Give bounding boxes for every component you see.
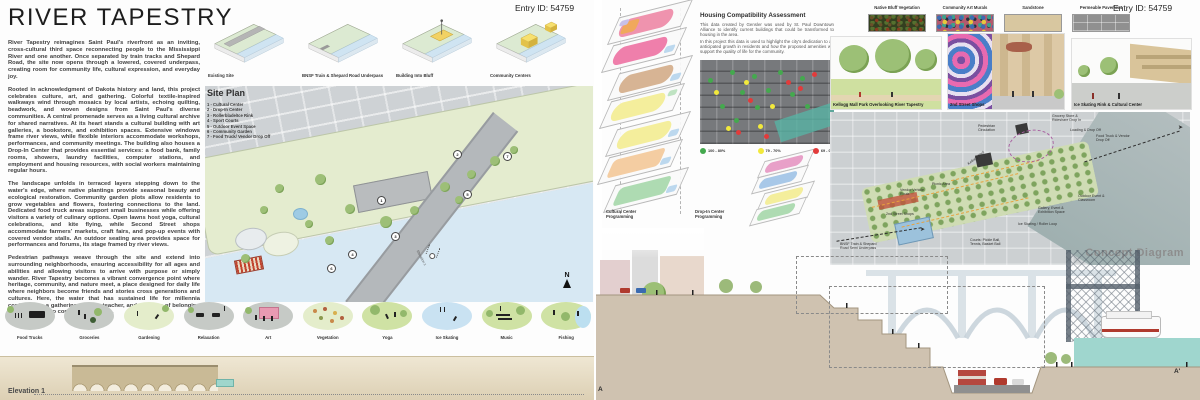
amenity-fishing: Fishing (536, 302, 596, 340)
elevation-baseline (34, 394, 584, 395)
assessment-dot (786, 80, 791, 85)
siteplan-marker: 4 (348, 250, 357, 259)
annotation: Loading & Drop Off (1070, 128, 1110, 132)
paragraph: River Tapestry reimagines Saint Paul's r… (8, 40, 200, 81)
process-diagram-label: BNSF Train & Shepard Road Underpass (302, 73, 396, 78)
water-shape (575, 306, 591, 328)
legend-green: 100 - 80% (700, 148, 725, 154)
siteplan-marker: 7 (503, 152, 512, 161)
column (1044, 34, 1052, 96)
amenity-relaxation: Relaxation (179, 302, 239, 340)
cultural-programming-label: Cultural Center Programming (606, 210, 662, 220)
community-centers-diagram-icon (490, 16, 574, 66)
section-marker-a: A (598, 386, 603, 393)
assessment-dot (714, 90, 719, 95)
process-diagram-bluff: Building Into Bluff (396, 16, 490, 78)
sidewalk (992, 96, 1064, 109)
assessment-dot (758, 124, 763, 129)
tree-icon (345, 204, 355, 214)
concept-diagram: ➤ ➤ Pedestrian Circulation Grocery Store… (830, 112, 1190, 265)
bench-shape (196, 313, 204, 317)
tree-icon (455, 196, 463, 204)
figure (1118, 93, 1120, 99)
render-ice-rink-cultural-center: Ice Skating Rink & Cultural Center (1071, 38, 1192, 110)
assessment-dot (726, 126, 731, 131)
assessment-dot (764, 134, 769, 139)
existing-site-diagram-icon (208, 16, 292, 66)
building-into-bluff-diagram-icon (396, 16, 480, 66)
legend-item: 7 - Food Truck/ Vendor Drop Off (207, 134, 270, 139)
assessment-dot (798, 86, 803, 91)
figure (1032, 91, 1034, 97)
tree-icon (305, 220, 313, 228)
north-arrow-triangle (563, 279, 571, 288)
tree-icon (410, 206, 419, 215)
mural-wall (948, 34, 992, 109)
truck-shape (29, 311, 45, 318)
process-diagram-existing-site: Existing Site (208, 16, 302, 78)
siteplan-marker: 2 (453, 150, 462, 159)
siteplan-marker: 5 (463, 190, 472, 199)
presentation-board: RIVER TAPESTRY Entry ID: 54759 River Tap… (0, 0, 1200, 400)
hedge (1054, 89, 1064, 99)
figure (891, 92, 893, 97)
annotation: 2nd Street Shops (886, 212, 920, 216)
amenity-art: Art (238, 302, 298, 340)
siteplan-marker: 1 (377, 196, 386, 205)
amenity-icon-row: Food Trucks Groceries Gardening (0, 302, 596, 340)
annotation: Vendor Vehicle Route (900, 188, 930, 196)
section-drawing: A A' (596, 250, 1200, 400)
yoga-icon (362, 302, 412, 330)
amenity-food-trucks: Food Trucks (0, 302, 60, 340)
cultural-center-stack-diagram (600, 8, 704, 214)
entry-id-left: Entry ID: 54759 (515, 3, 574, 13)
annotation: Outdoor Event & Classroom (1078, 194, 1116, 202)
yellow-dot-icon (758, 148, 764, 154)
siteplan-marker: 3 (391, 232, 400, 241)
elevation-label: Elevation 1 (8, 388, 45, 395)
assessment-dot (730, 70, 735, 75)
assessment-dot (790, 92, 795, 97)
amenity-vegetation: Vegetation (298, 302, 358, 340)
assessment-dot (778, 70, 783, 75)
music-icon (482, 302, 532, 330)
assessment-dot (744, 80, 749, 85)
sandstone-swatch (1004, 14, 1062, 32)
food-trucks-icon (5, 302, 55, 330)
figure (859, 92, 861, 97)
tree-icon (380, 216, 392, 228)
terraced-building (1130, 44, 1191, 84)
narrative-text: River Tapestry reimagines Saint Paul's r… (8, 40, 200, 322)
material-community-art-murals: Community Art Murals (932, 5, 998, 32)
section-marker-a-prime: A' (1174, 368, 1180, 375)
annotation: Picnic Area (932, 182, 958, 186)
tree-icon (325, 236, 334, 245)
north-arrow-icon: N (561, 272, 573, 288)
siteplan-marker: 6 (327, 264, 336, 273)
annotation: Pedestrian Circulation (978, 124, 1012, 132)
process-diagram-label: Existing Site (208, 73, 302, 78)
materials-row: Native Bluff Vegetation Community Art Mu… (864, 5, 1136, 32)
arched-bridge-elevation (72, 365, 218, 391)
assessment-dot (766, 88, 771, 93)
assessment-dot (734, 118, 739, 123)
paragraph: The landscape unfolds in terraced layers… (8, 181, 200, 249)
figure (1092, 93, 1094, 99)
annotation: Grocery Store & Rideshare Drop In (1052, 114, 1092, 122)
render-2nd-street-shops: 2nd Street Shops (947, 33, 1065, 110)
crowd-row (498, 318, 512, 320)
legend-yellow: 79 - 70% (758, 148, 781, 154)
crowd-row (496, 314, 510, 316)
terrace-line (1142, 65, 1191, 69)
amenity-groceries: Groceries (60, 302, 120, 340)
amenity-gardening: Gardening (119, 302, 179, 340)
pavement-swatch (1072, 14, 1130, 32)
tree-icon (315, 174, 326, 185)
section-reference-box (829, 286, 1045, 368)
process-diagram-underpass: BNSF Train & Shepard Road Underpass (302, 16, 396, 78)
paragraph: Rooted in acknowledgment of Dakota histo… (8, 87, 200, 175)
tree-icon (510, 146, 518, 154)
green-dot-icon (700, 148, 706, 154)
north-label: N (561, 272, 573, 279)
tree-icon (490, 156, 500, 166)
process-diagram-row: Existing Site BNSF Train & Shepard Road … (208, 16, 584, 78)
path (831, 95, 941, 101)
tree-icon (241, 254, 250, 263)
page-title: RIVER TAPESTRY (8, 4, 233, 32)
vegetation-icon (303, 302, 353, 330)
tree-icon (260, 206, 268, 214)
relaxation-icon (184, 302, 234, 330)
housing-paragraph: This data created by Gensler was used by… (700, 22, 834, 38)
process-diagram-community-centers: Community Centers (490, 16, 584, 78)
amenity-music: Music (477, 302, 537, 340)
render-kellogg-mall-park: Kellogg Mall Park Overlooking River Tape… (830, 36, 942, 110)
assessment-dot (740, 90, 745, 95)
ice-skating-icon (422, 302, 472, 330)
assessment-dot (800, 76, 805, 81)
figure (1012, 91, 1014, 97)
annotation: BNSF Train & Shepard Road Semi Underpass (840, 242, 884, 250)
underpass-diagram-icon (302, 16, 386, 66)
groceries-icon (64, 302, 114, 330)
terrace-line (1136, 55, 1191, 59)
hanging-plants (1006, 42, 1032, 52)
murals-swatch (936, 14, 994, 32)
process-diagram-label: Community Centers (490, 73, 584, 78)
mural-shape (259, 307, 279, 319)
assessment-dot (770, 104, 775, 109)
housing-legend: 100 - 80% 79 - 70% 69 - 0% (700, 148, 834, 154)
vegetation-swatch (868, 14, 926, 32)
site-plan-legend: 1 - Cultural Center 2 - Drop-In Center 3… (207, 102, 270, 140)
housing-assessment-map (700, 60, 834, 144)
pool-shape (216, 379, 234, 387)
dropin-center-stack-diagram (746, 156, 830, 210)
annotation: Food Truck & Vendor Drop Off (1096, 134, 1132, 142)
site-plan-heading: Site Plan (207, 88, 245, 98)
dropin-programming-label: Drop-In Center Programming (695, 210, 751, 220)
amenity-yoga: Yoga (358, 302, 418, 340)
material-sandstone: Sandstone (1000, 5, 1066, 32)
assessment-dot (748, 98, 753, 103)
annotation: Gallery, Event & Exhibition Space (1038, 206, 1074, 214)
red-dot-icon (813, 148, 819, 154)
process-diagram-label: Building Into Bluff (396, 73, 490, 78)
gardening-icon (124, 302, 174, 330)
tree-icon (467, 170, 476, 179)
material-permeable-pavement: Permeable Pavement (1068, 5, 1134, 32)
assessment-dot (720, 104, 725, 109)
annotation: Courts: Pickle Ball, Tennis, Basket Ball (970, 238, 1002, 246)
annotation: Ice Skating / Roller Loop (1018, 222, 1060, 226)
material-native-bluff-vegetation: Native Bluff Vegetation (864, 5, 930, 32)
pond (293, 208, 308, 220)
tree-icon (440, 182, 450, 192)
assessment-dot (805, 104, 810, 109)
bench-shape (212, 313, 220, 317)
housing-paragraph: In this project this data is used to hig… (700, 39, 834, 55)
assessment-dot (752, 74, 757, 79)
assessment-dot (708, 78, 713, 83)
art-icon (243, 302, 293, 330)
fishing-icon (541, 302, 591, 330)
housing-heading: Housing Compatibility Assessment (700, 12, 836, 19)
assessment-dot (812, 72, 817, 77)
assessment-dot (755, 105, 760, 110)
tree-icon (275, 184, 284, 193)
amenity-ice-skating: Ice Skating (417, 302, 477, 340)
assessment-dot (736, 130, 741, 135)
